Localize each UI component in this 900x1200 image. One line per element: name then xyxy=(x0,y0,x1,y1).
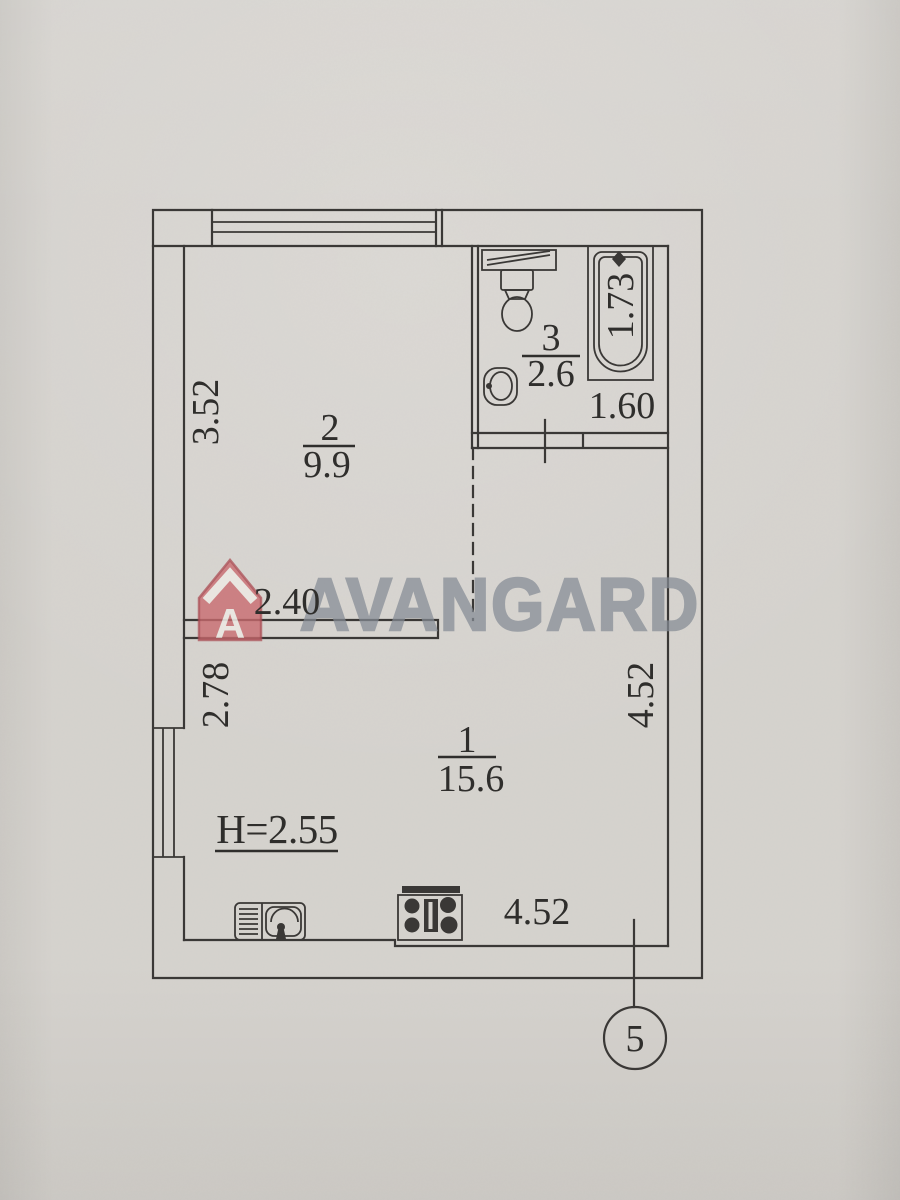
burner-icon xyxy=(405,899,420,914)
marker-number-label: 5 xyxy=(626,1018,645,1060)
dim-room2-depth: 3.52 xyxy=(185,379,227,446)
burner-icon xyxy=(440,897,456,913)
room2-area-label: 9.9 xyxy=(303,444,351,486)
room1-number-label: 1 xyxy=(458,719,477,761)
stove-center-stripe xyxy=(429,902,433,929)
room2-number-label: 2 xyxy=(321,407,340,449)
dim-bathroom-width: 1.60 xyxy=(589,385,656,427)
ceiling-height-label: H=2.55 xyxy=(216,806,337,852)
sink-faucet-icon xyxy=(277,923,285,931)
floorplan-svg: A AVANGARD 2 9.9 3 2.6 1 15.6 3.52 2.40 … xyxy=(0,0,900,1200)
room1-area-label: 15.6 xyxy=(438,758,505,800)
watermark-brand-text: AVANGARD xyxy=(300,563,700,646)
basin-tap-icon xyxy=(486,383,492,389)
logo-letter: A xyxy=(215,600,245,647)
dim-room2-width: 2.40 xyxy=(254,581,321,623)
dim-room1-right: 4.52 xyxy=(620,662,662,729)
floor-plan-photo: A AVANGARD 2 9.9 3 2.6 1 15.6 3.52 2.40 … xyxy=(0,0,900,1200)
stove-back-panel xyxy=(402,886,460,893)
burner-icon xyxy=(441,917,458,934)
dim-room1-bottom: 4.52 xyxy=(504,891,571,933)
dim-bathtub-length: 1.73 xyxy=(600,273,642,340)
burner-icon xyxy=(405,918,420,933)
room3-area-label: 2.6 xyxy=(527,353,575,395)
dim-room1-left: 2.78 xyxy=(195,662,237,729)
